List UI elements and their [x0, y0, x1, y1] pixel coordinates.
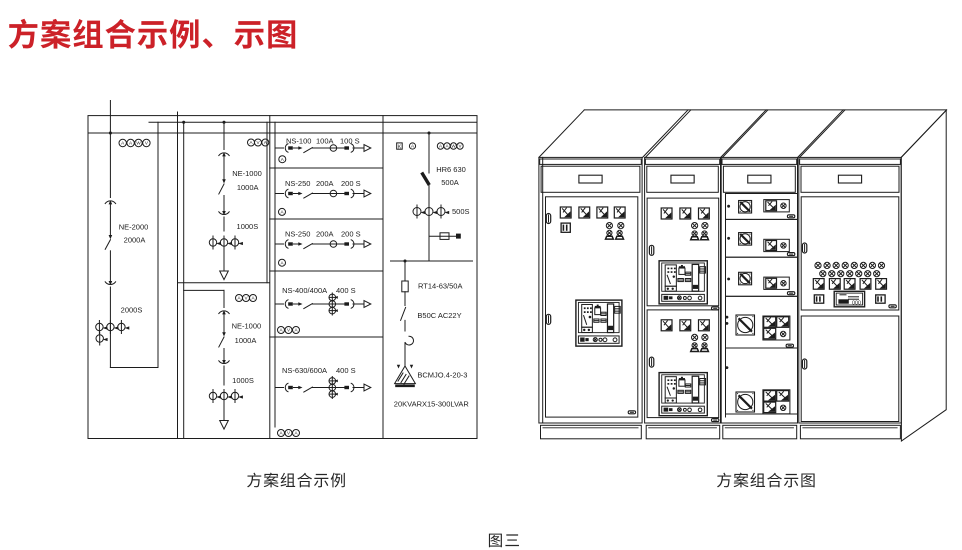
- svg-text:A: A: [279, 328, 283, 333]
- svg-text:V: V: [244, 296, 248, 301]
- svg-text:NE-1000: NE-1000: [232, 169, 262, 178]
- svg-text:NS-250: NS-250: [285, 179, 310, 188]
- svg-text:NS-400/400A: NS-400/400A: [282, 286, 327, 295]
- svg-text:NS-630/600A: NS-630/600A: [282, 366, 327, 375]
- svg-text:B50C AC22Y: B50C AC22Y: [417, 311, 461, 320]
- svg-text:NS-100: NS-100: [286, 137, 311, 146]
- svg-text:HR6 630: HR6 630: [436, 165, 466, 174]
- svg-text:A: A: [249, 140, 253, 145]
- svg-text:W: W: [451, 144, 456, 149]
- svg-text:V: V: [287, 431, 291, 436]
- svg-text:V: V: [287, 328, 291, 333]
- svg-text:500S: 500S: [452, 207, 470, 216]
- svg-text:V: V: [458, 144, 462, 149]
- svg-text:100A: 100A: [316, 137, 334, 146]
- svg-text:A: A: [121, 141, 125, 146]
- svg-text:2000A: 2000A: [124, 236, 146, 245]
- svg-text:200 S: 200 S: [341, 179, 361, 188]
- svg-text:200A: 200A: [316, 179, 334, 188]
- svg-text:400 S: 400 S: [336, 366, 356, 375]
- svg-text:A: A: [294, 431, 298, 436]
- svg-text:A: A: [280, 210, 284, 215]
- svg-text:BCMJO.4-20-3: BCMJO.4-20-3: [417, 371, 467, 380]
- svg-text:NS-250: NS-250: [285, 230, 310, 239]
- svg-text:V: V: [145, 141, 149, 146]
- svg-text:NE-2000: NE-2000: [119, 223, 149, 232]
- svg-text:A: A: [129, 141, 133, 146]
- svg-text:A: A: [294, 328, 298, 333]
- svg-text:200A: 200A: [316, 230, 334, 239]
- svg-text:A: A: [280, 260, 284, 265]
- svg-text:W: W: [136, 141, 141, 146]
- svg-text:A: A: [251, 296, 255, 301]
- svg-text:V: V: [256, 140, 260, 145]
- svg-text:NE-1000: NE-1000: [232, 322, 262, 331]
- svg-text:500A: 500A: [441, 178, 459, 187]
- svg-text:1000A: 1000A: [237, 183, 259, 192]
- svg-text:A: A: [439, 144, 443, 149]
- svg-text:A: A: [279, 431, 283, 436]
- svg-text:1000A: 1000A: [235, 336, 257, 345]
- svg-text:A: A: [445, 144, 449, 149]
- svg-text:100 S: 100 S: [340, 137, 360, 146]
- svg-text:000: 000: [852, 301, 861, 307]
- svg-text:A: A: [237, 296, 241, 301]
- svg-text:RT14-63/50A: RT14-63/50A: [418, 282, 462, 291]
- svg-text:1000S: 1000S: [232, 376, 254, 385]
- svg-text:400 S: 400 S: [336, 286, 356, 295]
- svg-text:200 S: 200 S: [341, 230, 361, 239]
- svg-text:2000S: 2000S: [121, 306, 143, 315]
- svg-text:A: A: [281, 157, 285, 162]
- svg-text:1000S: 1000S: [237, 222, 259, 231]
- svg-text:20KVARX15-300LVAR: 20KVARX15-300LVAR: [394, 400, 470, 409]
